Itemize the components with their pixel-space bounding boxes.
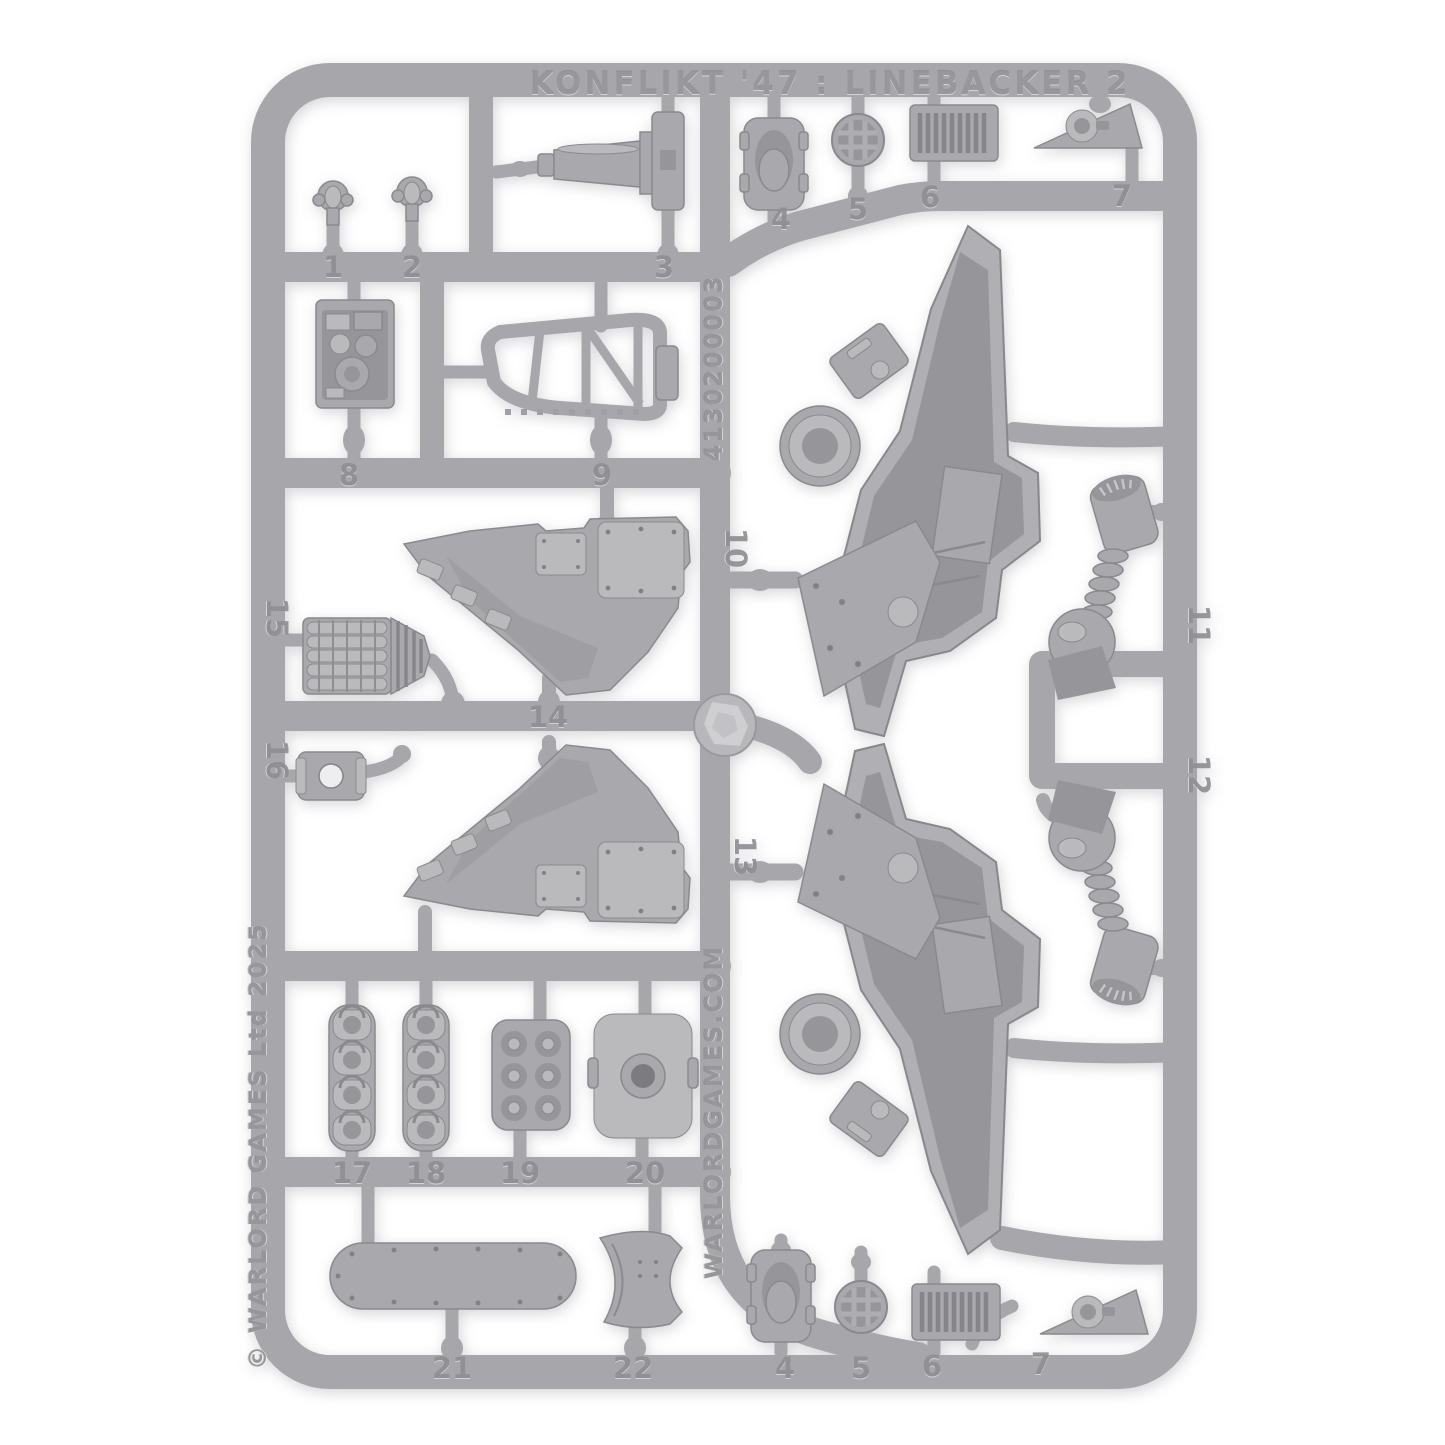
part-22-curved-armour bbox=[600, 1231, 682, 1327]
part-20-hatch-base bbox=[588, 1014, 698, 1138]
part-number-4: 4 bbox=[771, 202, 791, 236]
part-number-19: 19 bbox=[500, 1156, 540, 1190]
part-number-2: 2 bbox=[402, 250, 422, 284]
part-5-round-grille bbox=[832, 114, 884, 166]
part-1-crew-head bbox=[313, 181, 353, 225]
part-4-hatch-pad-duplicate bbox=[747, 1250, 815, 1342]
sprue-title: KONFLIKT '47 : LINEBACKER 2 bbox=[529, 66, 1130, 102]
part-3-weapon bbox=[538, 112, 684, 210]
sprue-copyright: © WARLORD GAMES Ltd 2025 bbox=[244, 922, 272, 1370]
part-number-10: 10 bbox=[719, 528, 753, 568]
part-number-21: 21 bbox=[432, 1351, 472, 1385]
part-21-riveted-plate bbox=[330, 1243, 576, 1309]
part-number-13: 13 bbox=[728, 836, 762, 876]
part-number-4-duplicate: 4 bbox=[775, 1351, 795, 1385]
part-18-track-strip bbox=[403, 1005, 449, 1151]
part-15-track-pad-block bbox=[303, 618, 430, 694]
part-number-14: 14 bbox=[528, 700, 568, 734]
part-13-sponson-panel bbox=[404, 745, 690, 923]
part-number-11: 11 bbox=[1182, 605, 1216, 645]
part-number-16: 16 bbox=[260, 740, 294, 780]
part-number-12: 12 bbox=[1182, 755, 1216, 795]
product-photo: KONFLIKT '47 : LINEBACKER 2 4130200003 W… bbox=[0, 0, 1445, 1445]
part-number-7: 7 bbox=[1112, 179, 1132, 213]
part-7-triangular-plate bbox=[1034, 104, 1142, 148]
part-7-triangular-plate-duplicate bbox=[1040, 1290, 1148, 1334]
part-number-9: 9 bbox=[592, 458, 612, 492]
part-number-6: 6 bbox=[920, 180, 940, 214]
part-6-vent-grille bbox=[910, 105, 998, 161]
part-number-6-duplicate: 6 bbox=[922, 1349, 942, 1383]
part-hull-half-lower bbox=[780, 744, 1040, 1254]
part-number-8: 8 bbox=[339, 458, 359, 492]
part-number-7-duplicate: 7 bbox=[1031, 1347, 1051, 1381]
sprue: KONFLIKT '47 : LINEBACKER 2 4130200003 W… bbox=[244, 66, 1216, 1385]
part-19-wheel-plate bbox=[492, 1020, 570, 1130]
part-17-track-strip bbox=[329, 1005, 375, 1151]
part-16-bracket bbox=[296, 752, 366, 800]
part-number-5-duplicate: 5 bbox=[851, 1351, 871, 1385]
part-9-frame-cage bbox=[488, 320, 678, 414]
part-number-5: 5 bbox=[848, 192, 868, 226]
part-number-15: 15 bbox=[260, 598, 294, 638]
injection-hub bbox=[694, 694, 756, 756]
part-number-20: 20 bbox=[625, 1156, 665, 1190]
part-4-hatch-pad bbox=[740, 118, 808, 210]
part-5-round-grille-duplicate bbox=[835, 1281, 887, 1333]
part-number-18: 18 bbox=[406, 1156, 446, 1190]
part-10-hull-half-upper bbox=[780, 226, 1040, 736]
sprue-website: WARLORDGAMES.COM bbox=[700, 945, 728, 1280]
part-2-crew-head bbox=[392, 177, 432, 221]
part-number-17: 17 bbox=[332, 1156, 372, 1190]
sprue-photo-svg: KONFLIKT '47 : LINEBACKER 2 4130200003 W… bbox=[0, 0, 1445, 1445]
part-6-vent-grille-duplicate bbox=[912, 1284, 1000, 1340]
part-12-exhaust-assembly bbox=[1048, 780, 1161, 1011]
part-number-22: 22 bbox=[613, 1351, 653, 1385]
sprue-sku: 4130200003 bbox=[700, 275, 728, 462]
part-8-engine-block bbox=[316, 300, 394, 408]
part-number-3: 3 bbox=[654, 250, 674, 284]
part-number-1: 1 bbox=[323, 250, 343, 284]
